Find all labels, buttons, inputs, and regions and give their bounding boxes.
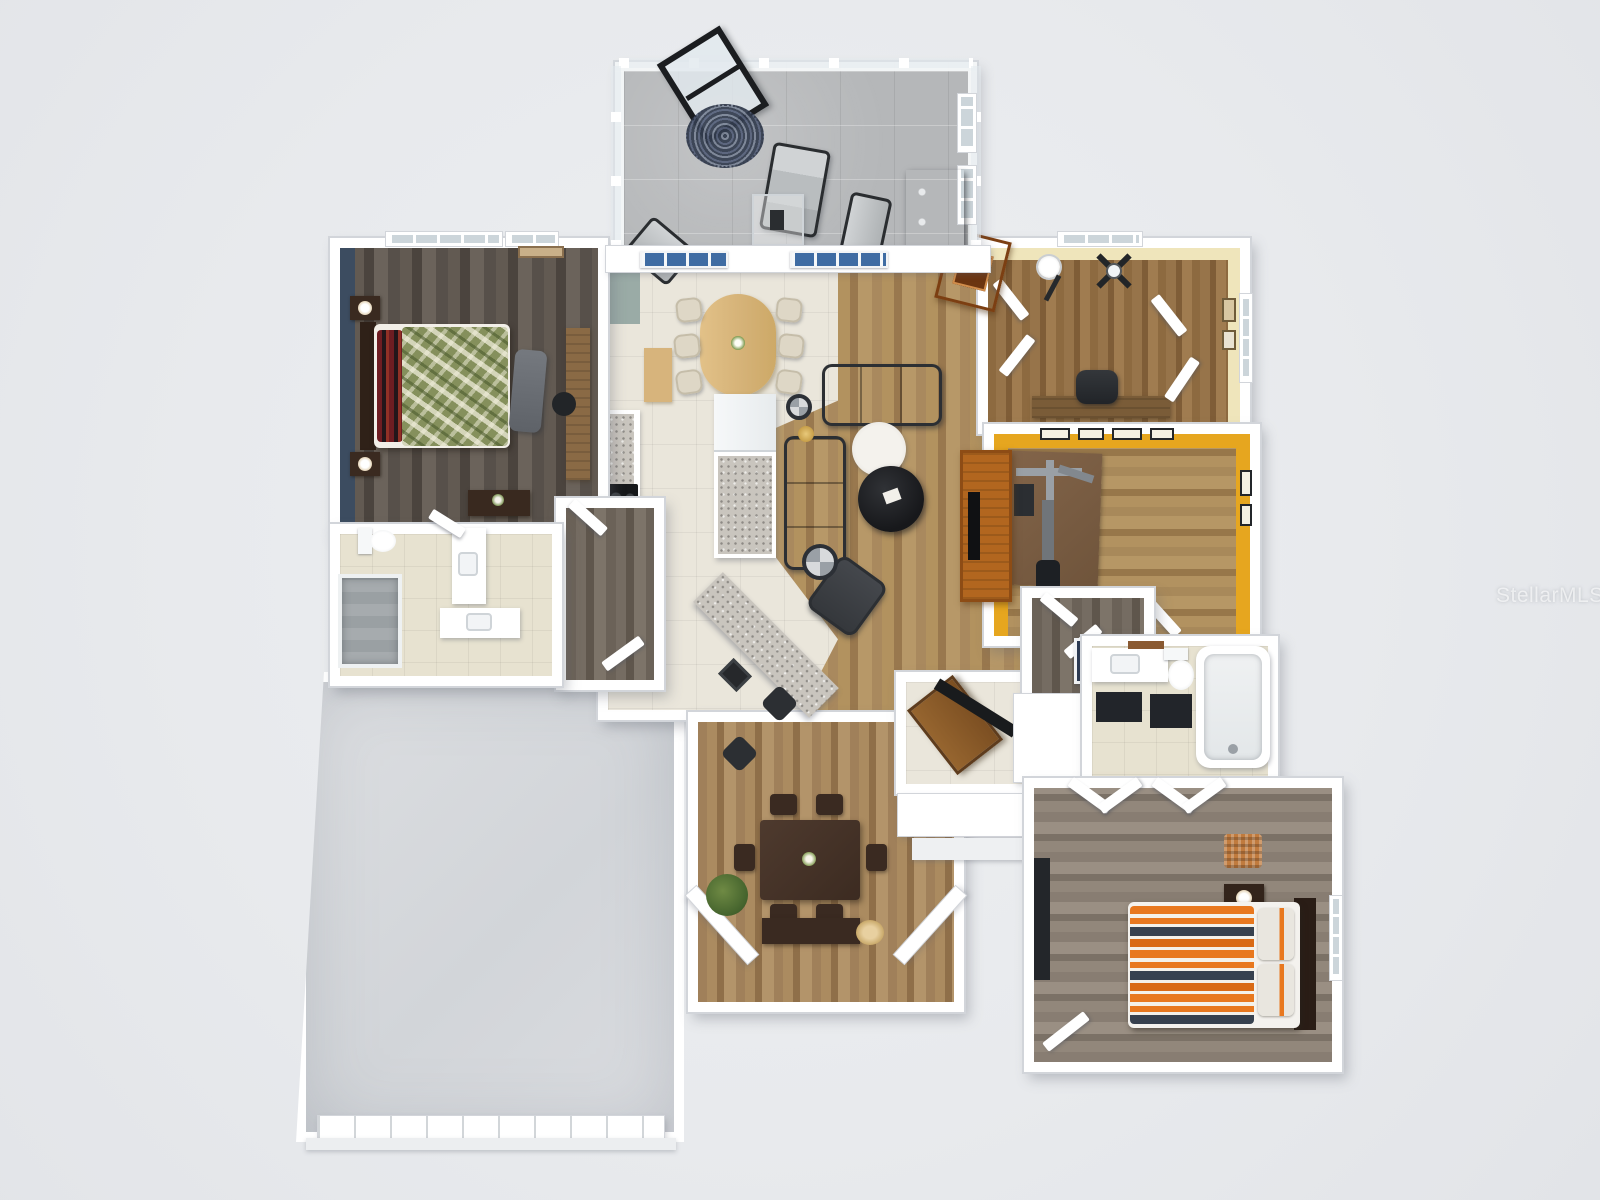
gym-frame	[1240, 504, 1252, 526]
bath-mat	[1150, 694, 1192, 728]
nook-chair	[774, 368, 803, 395]
sliding-glass-door	[640, 251, 728, 268]
nook-chair	[675, 297, 703, 324]
bath-mat	[1096, 692, 1142, 722]
nook-sideboard	[644, 348, 672, 402]
floorplan-canvas: StellarMLS	[0, 0, 1600, 1200]
master-bed-pillows	[377, 330, 403, 442]
guest-bed-pillow	[1258, 908, 1294, 960]
gym-frame	[1078, 428, 1104, 440]
nightstand-lamp	[358, 301, 372, 315]
walk-in-shower	[338, 574, 402, 668]
stellar-mls-watermark: StellarMLS	[1496, 584, 1600, 608]
sun-hat	[856, 920, 884, 945]
dining-console	[762, 918, 860, 944]
office-chair	[1076, 370, 1118, 404]
nook-accent-wall	[608, 268, 640, 324]
black-console-bar	[906, 170, 964, 248]
gym-frame	[1240, 470, 1252, 496]
toilet-bowl	[370, 530, 396, 552]
towel-shelf	[1128, 641, 1164, 649]
refrigerator	[714, 394, 776, 452]
porch-step	[912, 838, 1030, 860]
sliding-glass-door	[790, 251, 888, 268]
dining-chair	[866, 844, 887, 871]
nook-chair	[673, 333, 701, 360]
guest-bed-blanket	[1130, 906, 1254, 1024]
wicker-hamper	[1224, 834, 1262, 868]
bath2-sink	[1110, 654, 1140, 674]
desk-chair	[552, 392, 576, 416]
gym-frame	[1040, 428, 1070, 440]
garage-door-step	[306, 1138, 676, 1150]
wall-frame	[1222, 298, 1236, 322]
round-decor-wheel	[802, 544, 838, 580]
island-granite	[718, 456, 772, 554]
sofa	[822, 364, 942, 426]
vanity-sink	[466, 613, 492, 631]
dining-chair	[734, 844, 755, 871]
guest-bed-pillow	[1258, 964, 1294, 1016]
dining-chair	[770, 794, 797, 815]
dining-centerpiece	[802, 852, 816, 866]
nook-chair	[777, 333, 805, 360]
dresser-plant	[492, 494, 504, 506]
side-table-decor	[770, 210, 784, 230]
master-window	[386, 232, 502, 246]
dining-chair	[816, 794, 843, 815]
tv-dresser	[1034, 858, 1050, 980]
toilet	[1164, 648, 1188, 660]
office-window	[1240, 294, 1252, 382]
room-garage	[296, 672, 684, 1142]
master-bed-blanket	[402, 327, 508, 446]
wall-filler	[1014, 694, 1092, 782]
nook-chair	[674, 368, 703, 395]
tv-flat	[968, 492, 980, 560]
porch-slab	[898, 794, 1044, 836]
nightstand-lamp	[358, 457, 372, 471]
lanai-window	[958, 94, 976, 152]
nook-chair	[775, 297, 803, 324]
wall-frame	[1222, 330, 1236, 350]
gym-weight-stack	[1014, 484, 1034, 516]
round-decor-wheel	[786, 394, 812, 420]
gym-frame	[1112, 428, 1142, 440]
vanity-sink	[458, 552, 478, 576]
garage-door	[318, 1116, 664, 1138]
tub-faucet	[1228, 744, 1238, 754]
ceiling-fan-hub	[1108, 265, 1120, 277]
potted-plant	[706, 874, 748, 916]
guest-window	[1330, 896, 1342, 980]
wall-art	[518, 246, 564, 258]
rightwing-top-window	[1058, 232, 1142, 246]
gold-side-table	[798, 426, 814, 442]
lanai-post-frame-left	[611, 66, 621, 250]
gym-frame	[1150, 428, 1174, 440]
round-mandala-rug	[686, 104, 764, 168]
master-window-2	[506, 232, 558, 246]
table-centerpiece	[731, 336, 745, 350]
toilet-bowl	[1168, 660, 1194, 690]
